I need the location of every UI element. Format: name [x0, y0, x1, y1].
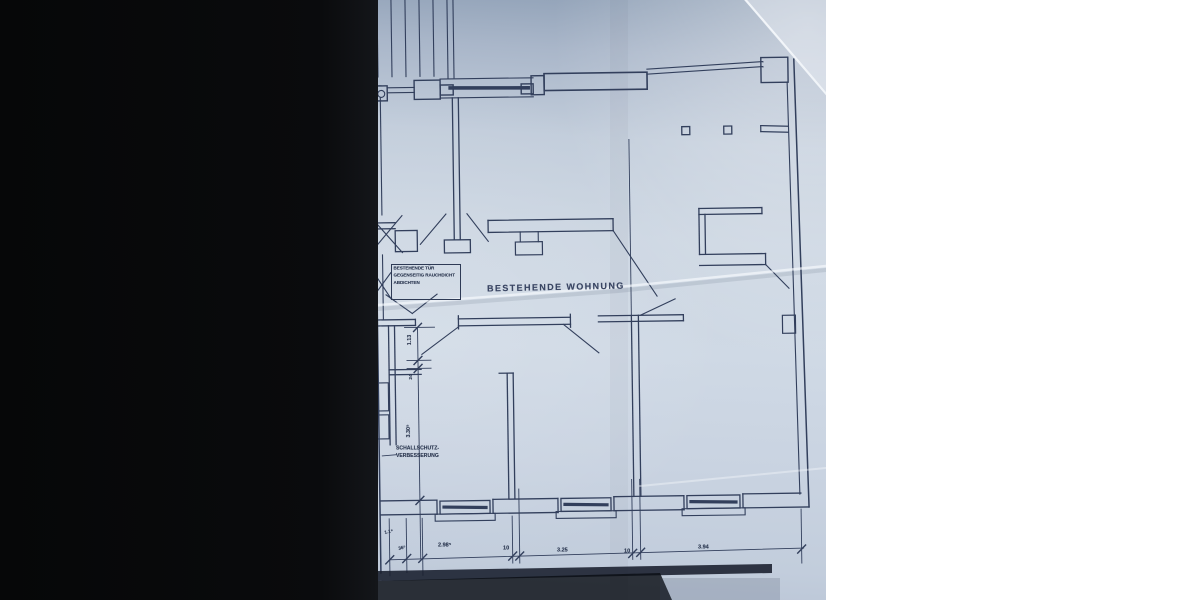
stairwell [377, 0, 454, 79]
thick-wall-segment [544, 72, 647, 90]
sound-note-line-1: SCHALLSCHUTZ- [396, 445, 439, 452]
columns [682, 126, 732, 135]
floor-plan-photo: BESTEHENDE TÜR GEGENSEITIG RAUCHDICHT AB… [0, 0, 1200, 600]
dimension-label-113: 1.13 [407, 327, 412, 352]
window-bottom-2 [556, 498, 616, 519]
note-box: BESTEHENDE TÜR GEGENSEITIG RAUCHDICHT AB… [391, 264, 461, 300]
dimension-label-325: 3.25 [557, 548, 568, 554]
window-top-1 [440, 78, 533, 98]
window-bottom-1 [435, 500, 495, 521]
sound-insulation-note: SCHALLSCHUTZ- VERBESSERUNG [396, 445, 439, 460]
dimension-label-10a: 10 [503, 546, 509, 552]
dimension-label-298: 2.98⁵ [438, 543, 451, 549]
note-line-3: ABDICHTEN [394, 280, 462, 287]
note-box-text: BESTEHENDE TÜR GEGENSEITIG RAUCHDICHT AB… [392, 265, 463, 288]
column-2 [724, 126, 732, 134]
photo-bottom-shadow [378, 564, 780, 600]
note-line-2: GEGENSEITIG RAUCHDICHT [394, 273, 462, 280]
note-line-1: BESTEHENDE TÜR [394, 266, 462, 273]
dimension-label-10b: 10 [624, 549, 630, 555]
dimension-label-330: 3.30⁵ [406, 417, 411, 446]
wall-niche [782, 315, 795, 333]
dimension-ticks [382, 318, 805, 564]
bottom-exterior-wall [381, 493, 809, 522]
photo-margin-left [0, 0, 378, 600]
sound-note-line-2: VERBESSERUNG [396, 452, 439, 459]
dimension-label-394: 3.94 [698, 545, 709, 551]
flue [515, 242, 542, 255]
top-exterior-wall [374, 57, 788, 101]
dimension-lines [380, 318, 805, 576]
dimension-label-24: 24 [409, 369, 414, 385]
column-1 [682, 127, 690, 135]
window-bottom-3 [682, 495, 745, 516]
photo-background-right [826, 0, 1200, 600]
door-axis-circle [378, 90, 385, 97]
